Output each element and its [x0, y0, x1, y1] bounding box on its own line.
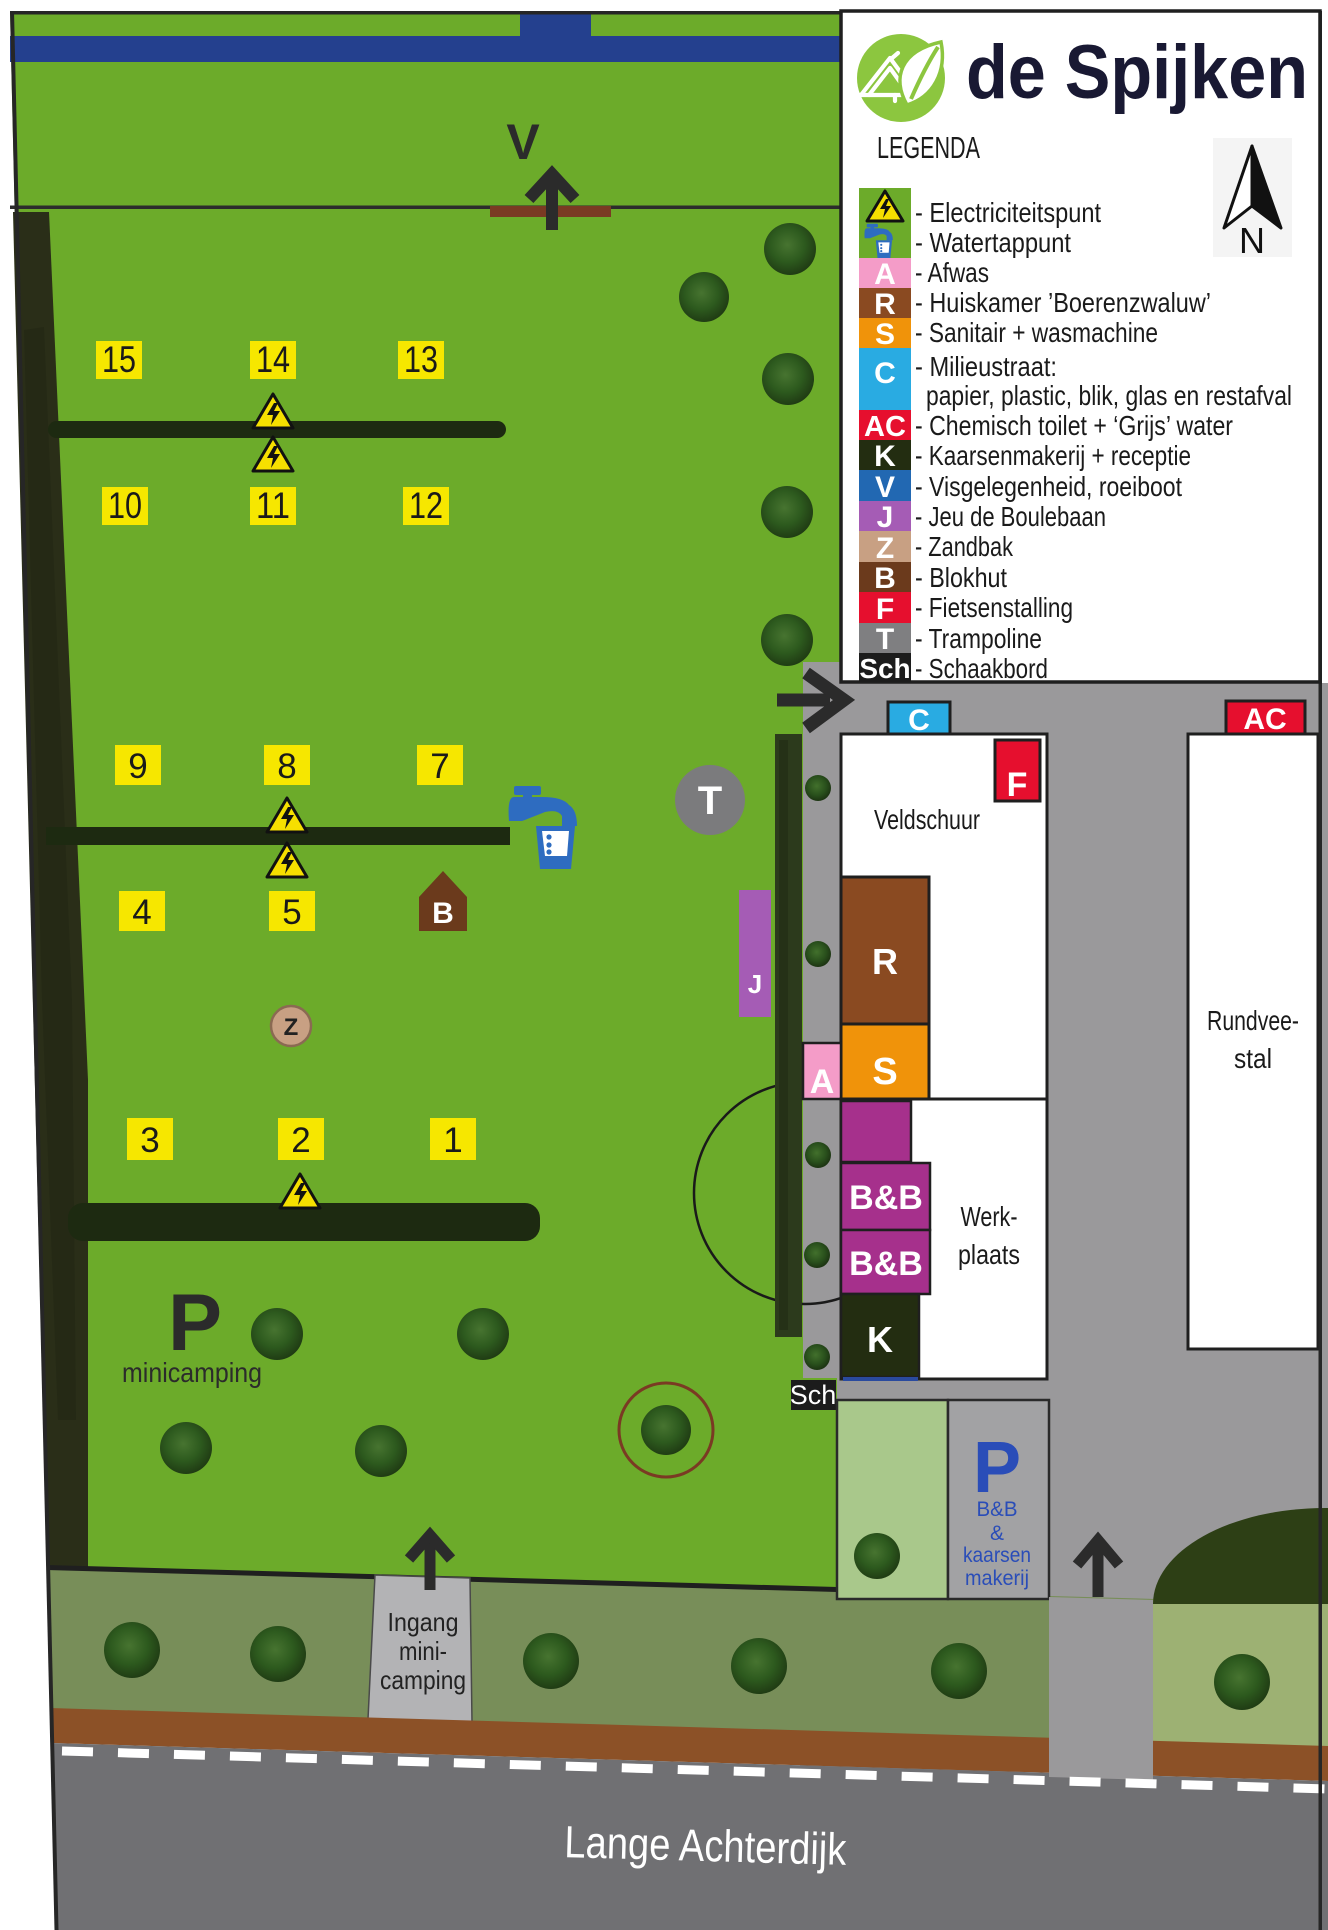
svg-text:K: K [867, 1319, 893, 1360]
svg-text:mini-: mini- [399, 1636, 447, 1666]
svg-text:plaats: plaats [958, 1239, 1020, 1270]
svg-text:LEGENDA: LEGENDA [877, 130, 980, 165]
svg-text:J: J [877, 501, 894, 534]
svg-text:K: K [874, 440, 896, 473]
svg-text:N: N [1239, 220, 1265, 261]
svg-text:Sch: Sch [859, 653, 910, 684]
svg-text:Lange Achterdijk: Lange Achterdijk [564, 1816, 848, 1875]
svg-text:- Trampoline: - Trampoline [915, 623, 1042, 654]
svg-text:papier, plastic, blik, glas en: papier, plastic, blik, glas en restafval [926, 380, 1292, 411]
svg-text:13: 13 [404, 339, 438, 380]
svg-text:de Spijken: de Spijken [966, 30, 1308, 115]
svg-text:AC: AC [1243, 703, 1286, 736]
svg-text:8: 8 [277, 747, 296, 786]
svg-text:B&B: B&B [977, 1498, 1018, 1521]
svg-text:Veldschuur: Veldschuur [874, 804, 980, 835]
svg-text:A: A [874, 258, 896, 291]
svg-text:Z: Z [284, 1014, 299, 1041]
svg-text:- Chemisch toilet + ‘Grijs’ wa: - Chemisch toilet + ‘Grijs’ water [915, 410, 1233, 441]
svg-text:makerij: makerij [965, 1567, 1029, 1590]
svg-text:A: A [810, 1063, 835, 1101]
svg-text:F: F [876, 593, 894, 626]
svg-text:V: V [875, 471, 895, 504]
svg-text:S: S [875, 318, 895, 351]
svg-text:Sch: Sch [790, 1380, 837, 1410]
svg-text:11: 11 [256, 485, 290, 526]
svg-text:1: 1 [443, 1121, 462, 1160]
svg-text:Ingang: Ingang [388, 1607, 459, 1637]
svg-text:- Sanitair + wasmachine: - Sanitair + wasmachine [915, 317, 1158, 348]
svg-text:T: T [876, 623, 894, 656]
svg-text:R: R [874, 288, 896, 321]
svg-text:- Kaarsenmakerij + receptie: - Kaarsenmakerij + receptie [915, 440, 1191, 471]
svg-text:10: 10 [108, 485, 142, 526]
svg-text:14: 14 [256, 339, 290, 380]
svg-text:9: 9 [128, 747, 147, 786]
svg-text:12: 12 [409, 485, 443, 526]
svg-text:- Schaakbord: - Schaakbord [915, 653, 1048, 684]
svg-text:15: 15 [102, 339, 136, 380]
svg-text:- Jeu de Boulebaan: - Jeu de Boulebaan [915, 501, 1106, 532]
svg-text:Rundvee-: Rundvee- [1207, 1005, 1299, 1036]
svg-text:- Blokhut: - Blokhut [915, 562, 1007, 593]
svg-text:P: P [973, 1428, 1021, 1508]
svg-text:C: C [908, 704, 930, 737]
svg-text:P: P [168, 1278, 222, 1368]
svg-text:F: F [1007, 766, 1028, 804]
svg-text:V: V [506, 114, 540, 170]
svg-text:B&B: B&B [849, 1179, 923, 1217]
svg-text:J: J [748, 969, 762, 999]
svg-text:3: 3 [140, 1121, 159, 1160]
svg-text:B&B: B&B [849, 1245, 923, 1283]
svg-text:B: B [874, 562, 896, 595]
svg-text:- Afwas: - Afwas [915, 257, 989, 288]
svg-text:T: T [698, 779, 722, 823]
svg-text:&: & [990, 1522, 1004, 1545]
svg-text:- Electriciteitspunt: - Electriciteitspunt [915, 197, 1101, 228]
svg-text:C: C [874, 357, 896, 390]
svg-text:minicamping: minicamping [122, 1357, 262, 1388]
svg-text:7: 7 [430, 747, 449, 786]
svg-text:Z: Z [876, 532, 894, 565]
svg-text:kaarsen: kaarsen [963, 1544, 1031, 1567]
svg-text:- Fietsenstalling: - Fietsenstalling [915, 592, 1073, 623]
svg-text:B: B [432, 897, 454, 930]
svg-text:camping: camping [380, 1665, 466, 1695]
svg-text:Werk-: Werk- [961, 1201, 1018, 1232]
svg-text:2: 2 [291, 1121, 310, 1160]
svg-text:5: 5 [282, 893, 301, 932]
svg-text:AC: AC [864, 411, 906, 443]
svg-text:- Watertappunt: - Watertappunt [915, 227, 1071, 258]
svg-text:- Milieustraat:: - Milieustraat: [915, 351, 1057, 382]
svg-text:- Huiskamer ’Boerenzwaluw’: - Huiskamer ’Boerenzwaluw’ [915, 287, 1211, 318]
svg-text:4: 4 [132, 893, 151, 932]
svg-text:- Zandbak: - Zandbak [915, 531, 1014, 562]
svg-text:S: S [872, 1051, 897, 1093]
svg-text:- Visgelegenheid, roeiboot: - Visgelegenheid, roeiboot [915, 471, 1182, 502]
svg-text:R: R [872, 941, 898, 982]
svg-text:stal: stal [1234, 1043, 1272, 1074]
